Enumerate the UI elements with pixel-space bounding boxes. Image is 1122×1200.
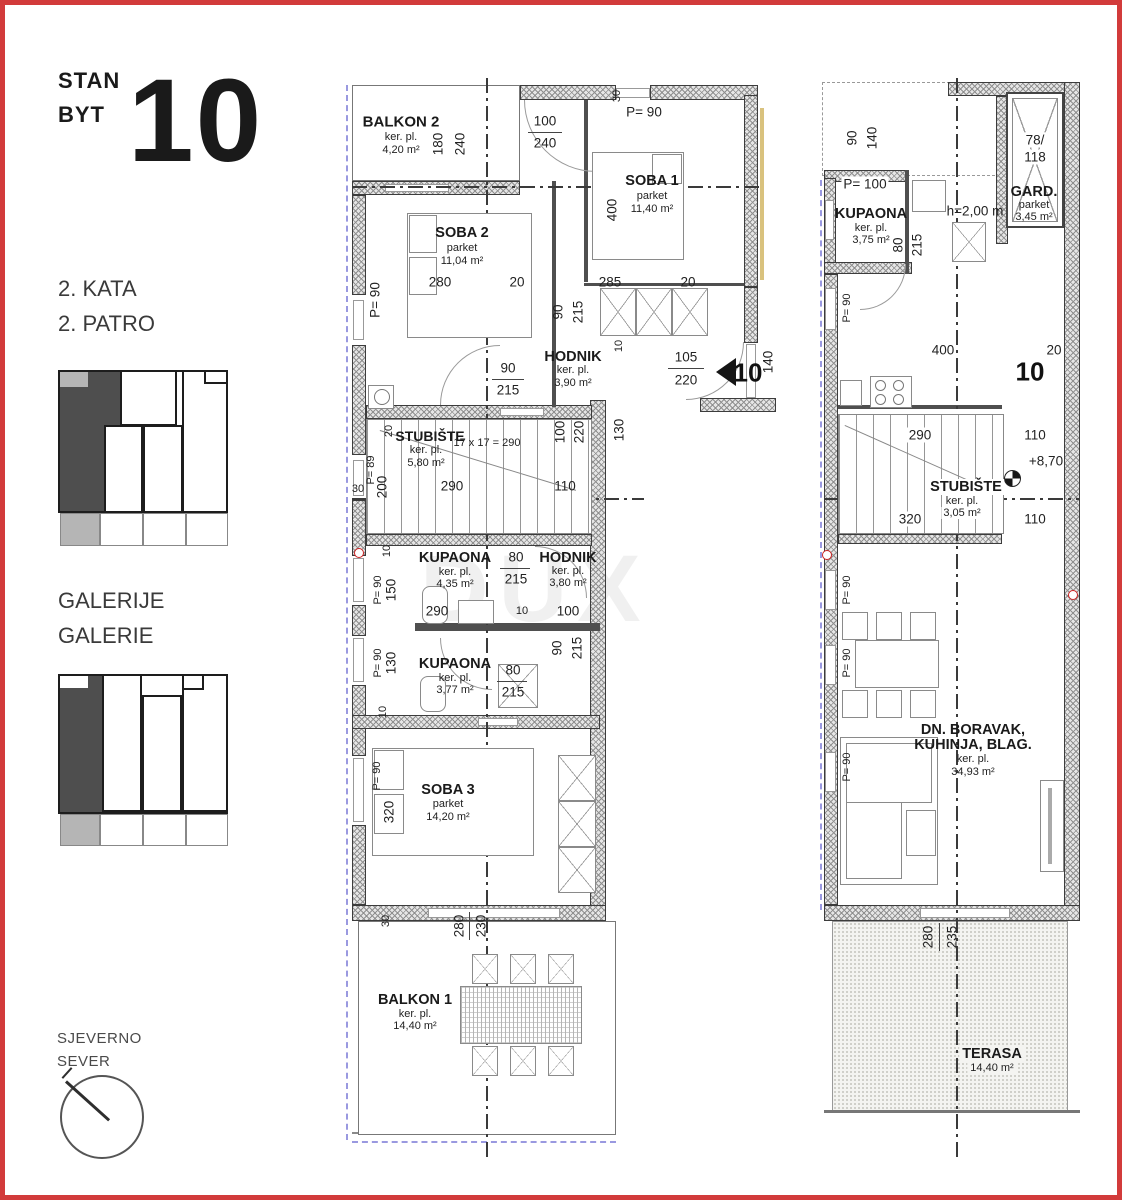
room-name: HODNIK [539,550,596,566]
dim-label: 30 [352,483,364,495]
dim-label: P= 90 [372,575,384,604]
dim-label: 80 [891,237,906,252]
partition-wall [552,181,556,407]
room-finish: ker. pl. [552,565,584,577]
dim-label: 290 [426,604,449,619]
boiler [912,180,946,212]
survey-marker [354,548,364,558]
dim-label: 290 [907,428,934,443]
fraction-line [939,923,940,951]
terrace-door [1040,780,1064,872]
terrace-surface [832,921,1068,1111]
dim-label: 215 [910,234,925,257]
dim-label: 220 [675,373,698,388]
terrace-edge-line [824,1110,1080,1113]
room-area: 14,40 m² [967,1062,1016,1074]
room-finish: parket [637,190,668,202]
kitchen-counter-edge [838,405,1002,409]
wardrobe [558,755,596,801]
room-area: 11,04 m² [441,255,484,267]
dim-label: 90 [550,640,565,655]
wall [352,715,600,729]
window-opening [353,758,364,822]
chair [510,954,536,984]
sink [458,600,494,624]
chair [910,612,936,640]
floor-label-hr: 2. KATA [58,276,137,302]
room-area: 4,35 m² [436,578,473,590]
fraction-line [497,681,527,682]
dim-label: P= 90 [841,752,853,781]
dim-label: P= 90 [841,293,853,322]
kitchen-sink [840,380,862,406]
dim-label: 215 [505,572,528,587]
chair [548,954,574,984]
washing-machine [952,222,986,262]
roof-dash-line [820,180,822,910]
dim-label: 100 [557,604,580,619]
dim-label: 30 [380,915,392,927]
dim-label: 400 [605,199,620,222]
dim-label: P= 90 [371,761,383,790]
room-name: KUPAONA [419,656,491,672]
wall [366,405,592,419]
burner [893,394,904,405]
wall [352,825,366,905]
wall [744,287,758,343]
fraction-line [492,379,524,380]
room-finish: ker. pl. [557,364,589,376]
chair [842,690,868,718]
unit-number: 10 [1016,357,1045,388]
north-label-cz: SEVER [57,1053,110,1070]
dim-label: 290 [441,479,464,494]
dim-label: 10 [613,340,625,352]
room-name: KUHINJA, BLAG. [914,737,1032,753]
burner [893,380,904,391]
roof-dash-line [346,940,348,1140]
window-opening [353,638,364,682]
coffee-table [906,810,936,856]
dim-label: 10 [381,545,393,557]
room-name: STUBIŠTE [928,479,1004,495]
height-note: h=2,00 m [947,204,1004,219]
window-opening [825,752,836,792]
dim-label: 280 [429,275,452,290]
dining-table [460,986,582,1044]
door-swing-arc [860,264,906,310]
room-area: 3,90 m² [554,377,591,389]
chair [472,954,498,984]
dim-label: 10 [377,706,389,718]
keyplan-highlight-unit [60,688,102,812]
dim-label: P= 90 [841,575,853,604]
dim-label: 230 [474,915,489,938]
dim-label: P= 90 [841,648,853,677]
dim-label: P= 90 [372,648,384,677]
dim-label: 90 [845,130,860,145]
dim-label: 105 [675,350,698,365]
wardrobe [558,801,596,847]
balcony-door-opening [428,908,560,918]
dim-label: 235 [945,926,960,949]
apartment-number: 10 [128,62,263,180]
entry-arrow [716,358,736,386]
survey-marker [822,550,832,560]
room-area: 14,20 m² [426,811,469,823]
apartment-label-hr: STAN [58,68,120,94]
level-label: +8,70 [1029,454,1063,469]
room-finish: parket [433,798,464,810]
dim-label: 100 [553,421,568,444]
dim-label: P= 100 [841,177,888,192]
dim-label: 110 [554,479,576,494]
room-area: 11,40 m² [631,203,674,215]
dim-label: 320 [382,801,397,824]
room-area: 3,45 m² [1015,211,1052,223]
room-area: 5,80 m² [407,457,444,469]
window-opening [825,570,836,610]
dim-label: 240 [534,136,557,151]
wall [352,345,366,455]
keyplan-gallery [58,668,230,850]
room-area: 34,93 m² [951,766,994,778]
dim-label: 220 [572,421,587,444]
apartment-label-cz: BYT [58,102,105,128]
facade-trim [760,108,764,280]
wardrobe [636,288,672,336]
dim-label: 320 [897,512,924,527]
stair-note: 17 x 17 = 290 [454,437,521,449]
chair [548,1046,574,1076]
dim-label: 150 [384,579,399,602]
burner [875,380,886,391]
room-name: BALKON 1 [378,992,452,1008]
chair [876,690,902,718]
north-label-hr: SJEVERNO [57,1030,142,1047]
room-finish: ker. pl. [855,222,887,234]
wardrobe [600,288,636,336]
door-swing-arc [440,345,500,405]
terrace-door-panel [1048,788,1052,864]
door-opening [500,408,544,416]
dim-label: 10 [516,605,528,617]
bed-pillow [409,215,437,253]
wall [352,605,366,636]
dim-label: 20 [680,275,695,290]
room-area: 3,80 m² [549,577,586,589]
gallery-label-hr: GALERIJE [58,588,164,614]
room-finish: ker. pl. [944,495,980,507]
wall [520,85,616,100]
room-name: DN. BORAVAK, [921,722,1025,738]
room-finish: parket [447,242,478,254]
keyplan-highlight-unit [88,372,120,388]
wall [838,534,1002,544]
room-area: 3,05 m² [941,507,982,519]
terrace-door-opening [920,908,1010,918]
wall [650,85,758,100]
floor-plan-sheet: STAN BYT 10 2. KATA 2. PATRO GALERIJE GA… [0,0,1122,1200]
dim-label: 140 [865,127,880,150]
dim-label: 215 [497,383,520,398]
dim-label: 20 [509,275,524,290]
roof-outline-dash [822,82,1010,176]
window-opening [353,558,364,602]
room-finish: ker. pl. [410,444,442,456]
dim-label: 130 [384,652,399,675]
roof-dash-line [346,85,348,935]
room-name: SOBA 2 [435,225,488,241]
dim-label: 240 [453,133,468,156]
fraction-line [668,368,704,369]
dim-label: 80 [508,550,523,565]
fraction-line [528,132,562,133]
axis-line [352,186,760,188]
window-opening [353,300,364,340]
chair [510,1046,536,1076]
dim-label: 110 [1024,428,1046,443]
dim-label: 285 [599,275,622,290]
wall [366,534,592,546]
window-opening [825,645,836,685]
skylight-size: 78/ [1024,133,1047,148]
room-area: 3,75 m² [852,234,889,246]
survey-marker [1068,590,1078,600]
floor-label-cz: 2. PATRO [58,311,155,337]
dim-label: 80 [505,663,520,678]
dim-label: 30 [611,90,623,102]
burner [875,394,886,405]
dim-label: 90 [500,361,515,376]
chair [842,612,868,640]
window-opening [825,288,836,330]
dim-label: 400 [932,343,955,358]
room-name: KUPAONA [835,206,907,222]
fraction-line [469,912,470,940]
room-name: SOBA 3 [421,782,474,798]
room-finish: ker. pl. [957,753,989,765]
dim-label: 20 [1046,343,1061,358]
room-finish: ker. pl. [439,672,471,684]
dim-label: 110 [1024,512,1046,527]
room-name: BALKON 2 [363,114,440,131]
unit-number-marker: 10 [734,358,763,389]
washing-machine-drum [374,389,390,405]
fraction-line [500,568,530,569]
wall [352,195,366,295]
chair [876,612,902,640]
dim-label: 200 [375,476,390,499]
room-area: 14,40 m² [393,1020,436,1032]
dim-label: P= 90 [626,105,662,120]
dim-label: 90 [551,304,566,319]
dining-table [855,640,939,688]
level-marker [1004,470,1021,487]
dim-label: P= 90 [368,282,383,318]
dim-label: 280 [452,915,467,938]
wall [744,95,758,287]
keyplan-light-notch [60,372,88,387]
dim-label: 20 [383,425,395,437]
wall [700,398,776,412]
room-finish: parket [1019,199,1050,211]
dim-label: 215 [570,637,585,660]
dim-label: 140 [761,351,776,374]
room-name: SOBA 1 [625,173,678,189]
room-area: 3,77 m² [436,684,473,696]
room-name: GARD. [1011,184,1058,200]
room-name: TERASA [959,1046,1025,1062]
dim-label: 280 [921,926,936,949]
dim-label: 215 [571,301,586,324]
dim-label: 215 [502,685,525,700]
chair [910,690,936,718]
partition-wall [905,170,909,274]
wardrobe [672,288,708,336]
wardrobe [558,847,596,893]
room-name: HODNIK [544,349,601,365]
room-finish: ker. pl. [439,566,471,578]
keyplan-floor2 [58,368,230,550]
partition-wall [415,623,600,631]
door-opening [478,718,518,726]
dim-label: 180 [431,133,446,156]
skylight-size: 118 [1022,150,1048,165]
chair [472,1046,498,1076]
wall [1064,82,1080,912]
room-finish: ker. pl. [385,131,417,143]
window-opening [825,200,834,240]
dim-label: 130 [612,419,627,442]
room-area: 4,20 m² [382,144,419,156]
room-name: KUPAONA [419,550,491,566]
roof-dash-line [352,1141,616,1143]
gallery-label-cz: GALERIE [58,623,153,649]
dim-label: 100 [534,114,557,129]
room-finish: ker. pl. [399,1008,431,1020]
